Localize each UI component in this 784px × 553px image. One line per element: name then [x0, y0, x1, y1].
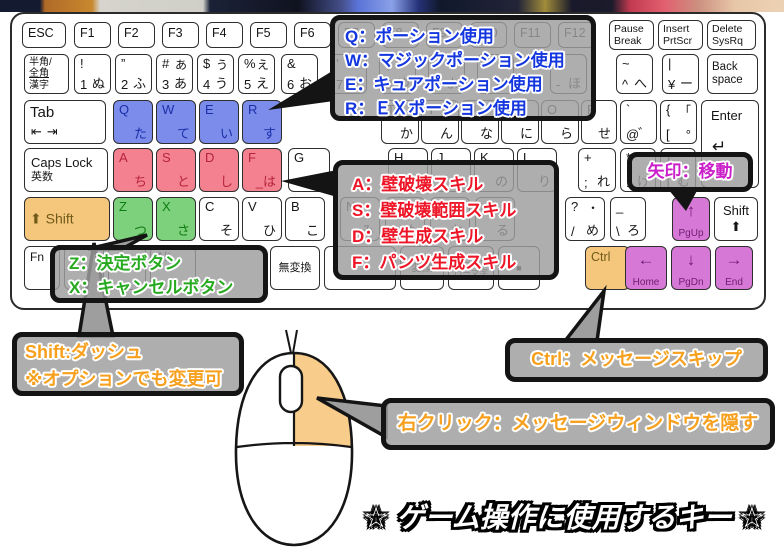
key-insert: InsertPrtScr	[658, 20, 703, 50]
rightclick-line: 右クリック：メッセージウィンドウを隠す	[386, 403, 770, 444]
key-caps: Caps Lock英数	[24, 148, 108, 192]
key-x: Xさ	[156, 197, 196, 241]
key-k6: &6お	[281, 54, 318, 94]
key-q: Qた	[113, 100, 153, 144]
key-end: →End	[715, 246, 753, 290]
rightclick-callout: 右クリック：メッセージウィンドウを隠す	[381, 398, 775, 450]
key-pgup: ↑PgUp	[672, 197, 710, 241]
key-k5: %え5え	[238, 54, 275, 94]
key-delete: DeleteSysRq	[707, 20, 756, 50]
key-lbracket: {「[°	[660, 100, 697, 144]
key-z: Zつ	[113, 197, 153, 241]
skip-callout: Ctrl：メッセージスキップ	[505, 338, 768, 382]
key-backspace: Backspace	[707, 54, 758, 94]
move-line: 矢印：移動	[632, 157, 748, 186]
skill-line-a: A：壁破壊スキル	[352, 172, 554, 198]
key-g: Gき	[288, 148, 330, 192]
skill-line-s: S：壁破壊範囲スキル	[352, 198, 554, 224]
key-s: Sと	[156, 148, 196, 192]
key-at: `@゛	[620, 100, 657, 144]
page-title: ☆ ゲーム操作に使用するキー ☆	[348, 496, 780, 536]
potion-line-e: E：キュアポーション使用	[345, 73, 591, 97]
key-r: Rす	[242, 100, 282, 144]
key-backslash: _\ろ	[610, 197, 646, 241]
potion-line-q: Q：ポーション使用	[345, 25, 591, 49]
key-semicolon: +;れ	[578, 148, 616, 192]
key-shiftl: ⬆ Shift	[24, 197, 110, 241]
potion-callout: Q：ポーション使用 W：マジックポーション使用 E：キュアポーション使用 R：Ｅ…	[330, 15, 596, 121]
key-home: ←Home	[625, 246, 667, 290]
key-hankaku: 半角/全角漢字	[24, 54, 69, 94]
move-callout: 矢印：移動	[627, 152, 753, 192]
key-pgdn: ↓PgDn	[671, 246, 711, 290]
key-v: Vひ	[242, 197, 282, 241]
key-caret: ~^へ	[616, 54, 653, 94]
key-tab: Tab⇤⇥	[24, 100, 106, 144]
key-f4: F4	[206, 22, 243, 48]
skill-line-d: D：壁生成スキル	[352, 224, 554, 250]
key-f5: F5	[250, 22, 287, 48]
confirm-callout: Z：決定ボタン X：キャンセルボタン	[50, 245, 268, 303]
key-d: Dし	[199, 148, 239, 192]
key-k2: ”2ふ	[115, 54, 152, 94]
key-c: Cそ	[199, 197, 239, 241]
key-e: Eい	[199, 100, 239, 144]
key-k1: !1ぬ	[74, 54, 111, 94]
key-slash: ?・/め	[565, 197, 605, 241]
key-k3: #あ3あ	[156, 54, 193, 94]
key-shiftr: Shift⬆	[714, 197, 758, 241]
skip-line: Ctrl：メッセージスキップ	[510, 343, 763, 376]
confirm-line-z: Z：決定ボタン	[69, 252, 263, 276]
key-ctrl: Ctrl	[585, 246, 630, 290]
dash-line-2: ※オプションでも変更可	[25, 366, 239, 393]
key-yen: |¥ー	[662, 54, 699, 94]
key-f3: F3	[162, 22, 199, 48]
key-w: Wて	[156, 100, 196, 144]
key-b: Bこ	[285, 197, 325, 241]
key-a: Aち	[113, 148, 153, 192]
key-muhenkan: 無変換	[270, 246, 320, 290]
key-f: F_は	[242, 148, 282, 192]
skill-line-f: F：パンツ生成スキル	[352, 250, 554, 276]
key-pause: PauseBreak	[609, 20, 654, 50]
dash-line-1: Shift:ダッシュ	[25, 339, 239, 366]
potion-line-w: W：マジックポーション使用	[345, 49, 591, 73]
key-f6: F6	[294, 22, 331, 48]
key-esc: ESC	[22, 22, 66, 48]
key-f2: F2	[118, 22, 155, 48]
dash-callout: Shift:ダッシュ ※オプションでも変更可	[12, 332, 244, 396]
skill-callout: A：壁破壊スキル S：壁破壊範囲スキル D：壁生成スキル F：パンツ生成スキル	[333, 160, 559, 280]
key-k4: $う4う	[197, 54, 234, 94]
key-f1: F1	[74, 22, 111, 48]
potion-line-r: R：ＥＸポーション使用	[345, 97, 591, 121]
confirm-line-x: X：キャンセルボタン	[69, 276, 263, 300]
